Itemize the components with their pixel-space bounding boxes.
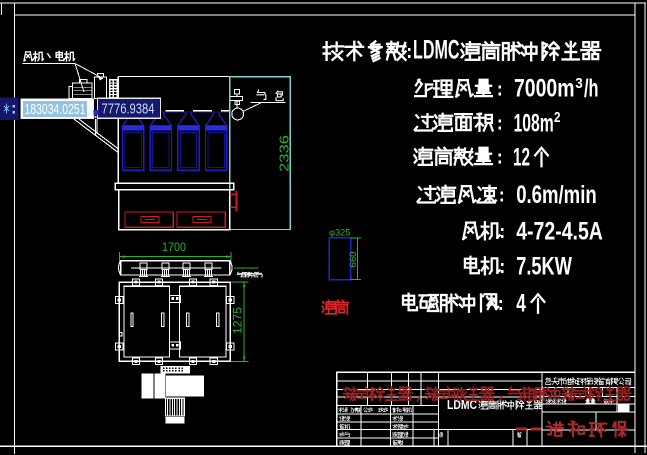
svg-text:1275: 1275 xyxy=(233,307,245,334)
svg-text:2: 2 xyxy=(554,109,561,126)
svg-text:7.5KW: 7.5KW xyxy=(516,253,572,281)
svg-text:108m: 108m xyxy=(514,110,554,138)
svg-text:660: 660 xyxy=(348,252,359,268)
svg-text:0.6m/min: 0.6m/min xyxy=(516,181,597,209)
svg-text:/h: /h xyxy=(584,75,599,103)
svg-text:183034.0251: 183034.0251 xyxy=(25,102,86,118)
svg-text:4-72-4.5A: 4-72-4.5A xyxy=(516,218,603,246)
svg-text:1700: 1700 xyxy=(162,242,186,254)
svg-text:7776.9384: 7776.9384 xyxy=(102,102,155,118)
svg-text:7000m: 7000m xyxy=(514,75,575,103)
svg-text:12: 12 xyxy=(513,144,530,172)
svg-text:4: 4 xyxy=(516,290,526,318)
svg-text:3: 3 xyxy=(575,75,583,92)
svg-text:LDMC: LDMC xyxy=(413,35,460,65)
svg-text:φ325: φ325 xyxy=(329,228,351,239)
svg-text:2336: 2336 xyxy=(278,135,292,172)
